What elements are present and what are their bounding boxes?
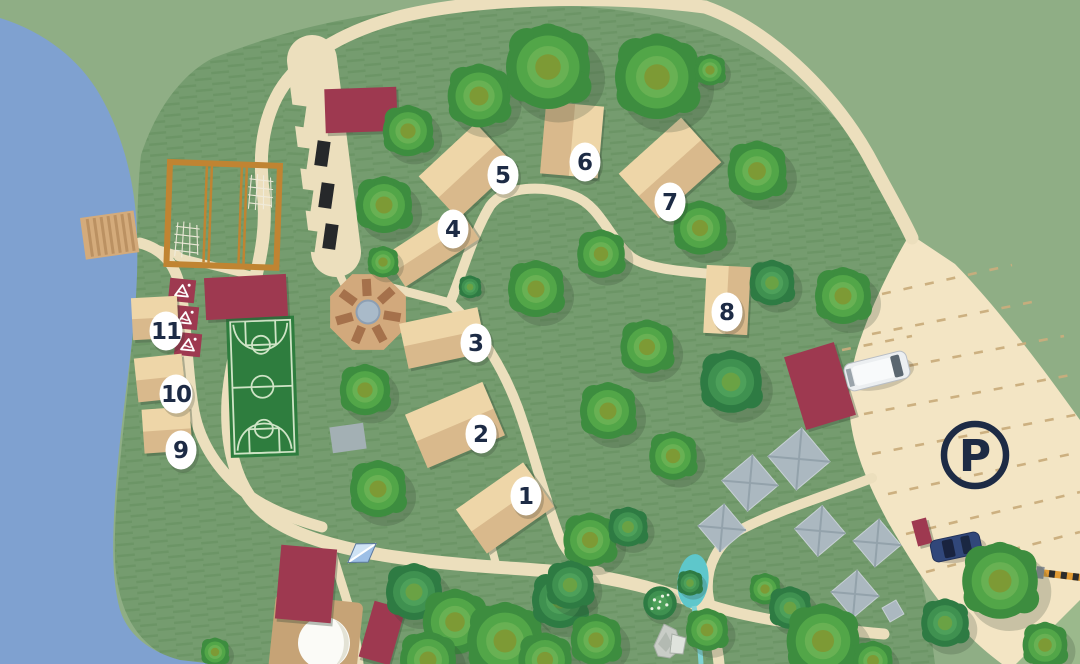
pitch-marker-1-label: 1 [518, 484, 534, 510]
planter [294, 229, 318, 253]
pitch-marker-4-label: 4 [445, 217, 461, 243]
basketball-court [226, 316, 299, 458]
pitch-marker-8-label: 8 [719, 300, 735, 326]
pitch-marker-11-label: 11 [151, 319, 181, 345]
shed [329, 423, 366, 453]
pitch-marker-5-label: 5 [495, 163, 511, 189]
dock [80, 210, 139, 259]
pitch-marker-7-label: 7 [662, 190, 678, 216]
service-building [275, 545, 337, 624]
planter [286, 146, 310, 170]
planter [290, 188, 314, 212]
campsite-map: 1 2 3 4 5 6 7 8 9 10 11 P [0, 0, 1080, 664]
parking-badge-label: P [959, 431, 991, 482]
picnic-plaza [330, 274, 406, 350]
planter [283, 104, 307, 128]
pitch-marker-10-label: 10 [161, 382, 191, 408]
fire-pit [357, 301, 380, 324]
pitch-marker-9-label: 9 [173, 438, 189, 464]
pitch-marker-3-label: 3 [468, 331, 484, 357]
service-building [204, 274, 288, 320]
pitch-marker-6-label: 6 [577, 150, 593, 176]
pitch-marker-2-label: 2 [473, 422, 489, 448]
